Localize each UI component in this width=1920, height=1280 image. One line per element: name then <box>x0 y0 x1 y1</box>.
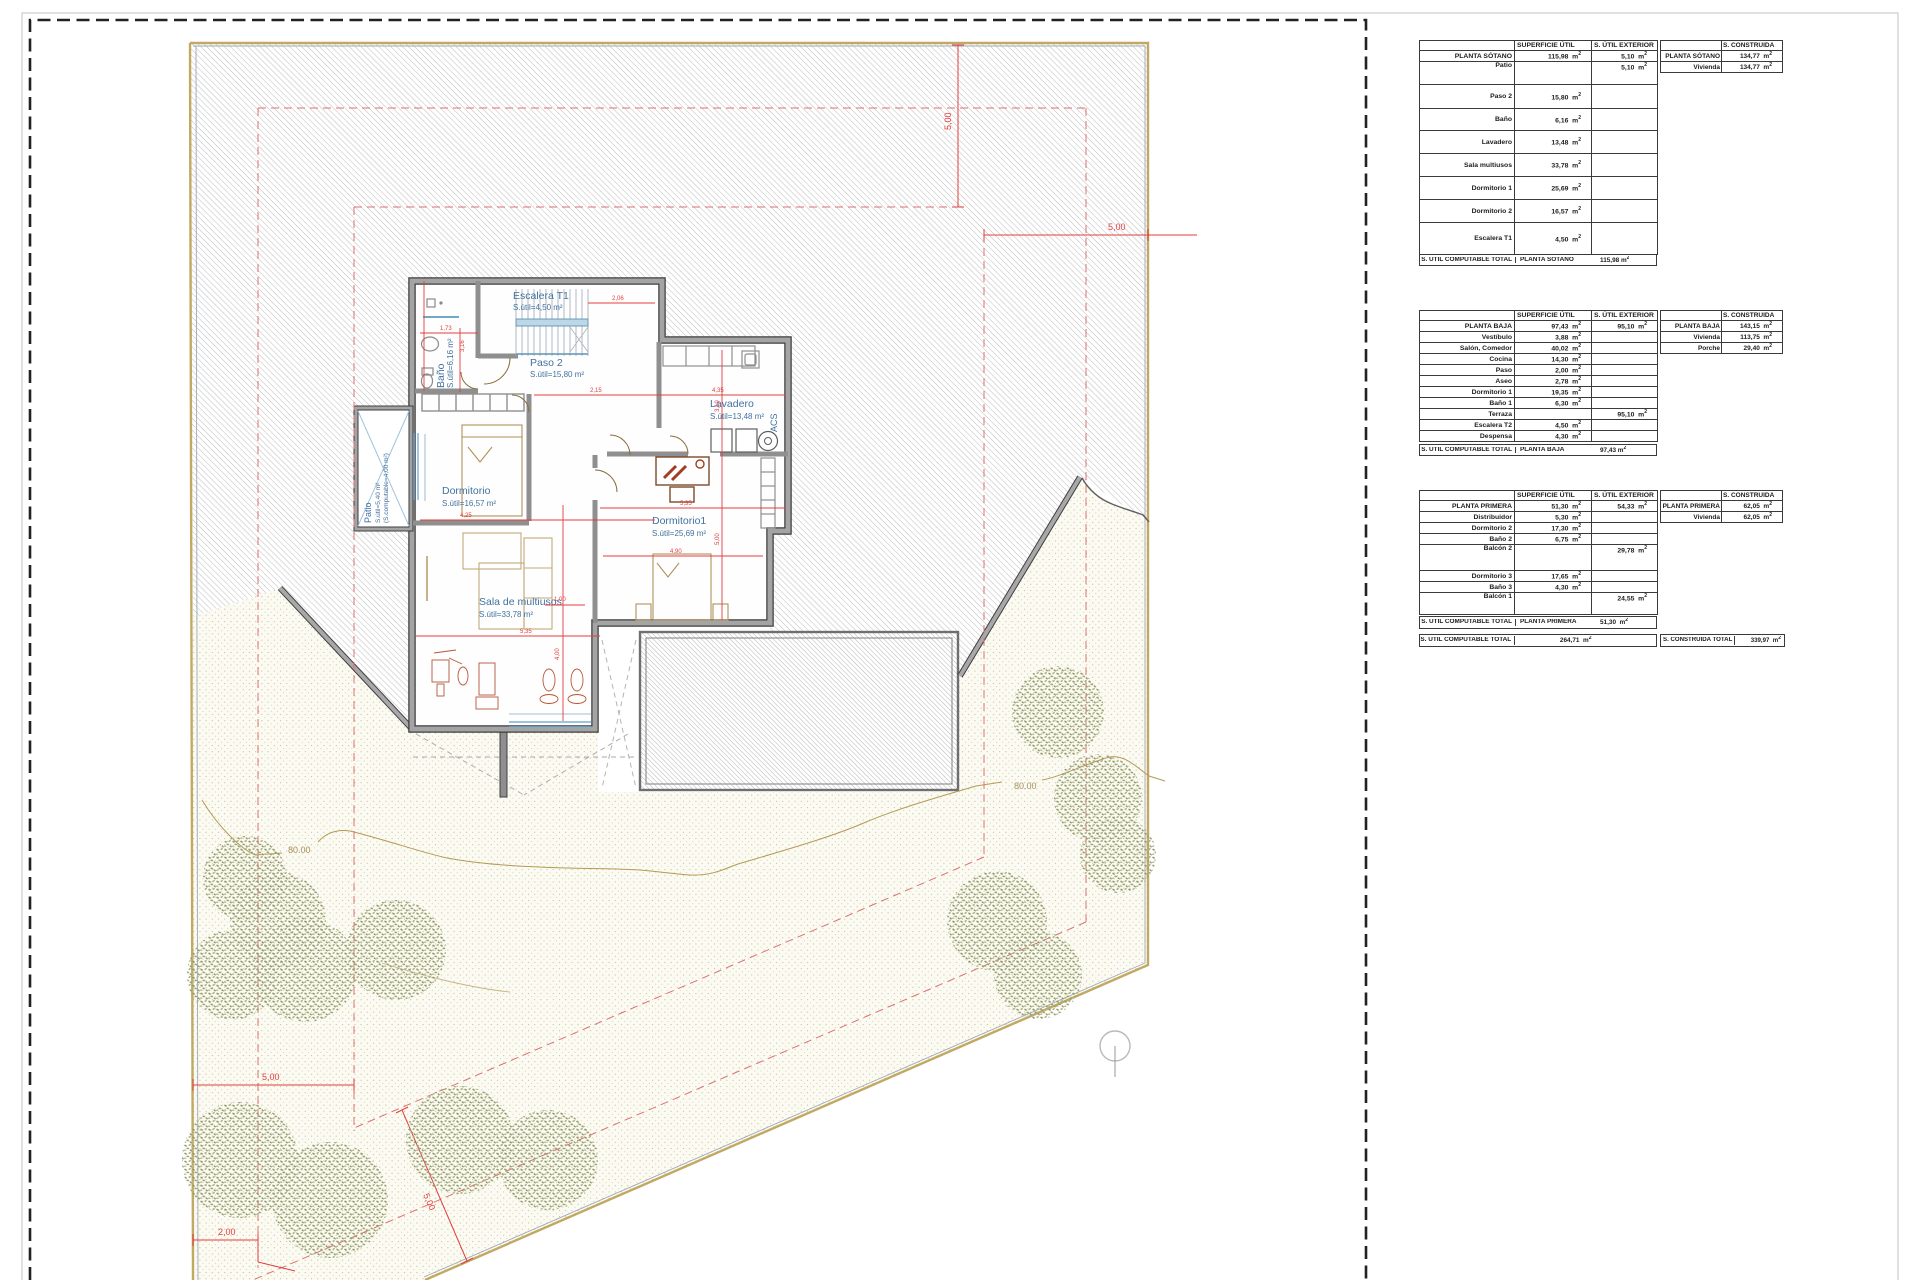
svg-text:Escalera T1: Escalera T1 <box>513 290 569 302</box>
svg-text:S.útil=33,78 m²: S.útil=33,78 m² <box>479 610 533 619</box>
svg-text:Sala de multiusos: Sala de multiusos <box>479 596 562 608</box>
svg-text:S.útil=4,50 m²: S.útil=4,50 m² <box>513 303 563 312</box>
svg-text:S.útil=5,40 m²: S.útil=5,40 m² <box>375 482 382 523</box>
svg-text:5,35: 5,35 <box>520 629 532 635</box>
svg-text:S.útil=16,57 m²: S.útil=16,57 m² <box>442 499 496 508</box>
svg-text:S.útil=6,16 m²: S.útil=6,16 m² <box>446 338 455 388</box>
svg-text:1,00: 1,00 <box>554 597 566 603</box>
svg-text:5,00: 5,00 <box>262 1072 280 1082</box>
svg-text:S.útil=25,69 m²: S.útil=25,69 m² <box>652 529 706 538</box>
svg-text:80.00: 80.00 <box>288 845 311 855</box>
svg-text:ACS: ACS <box>769 413 779 432</box>
svg-text:80.00: 80.00 <box>1014 781 1037 791</box>
svg-text:Dormitorio: Dormitorio <box>442 485 491 497</box>
svg-text:1,73: 1,73 <box>440 326 452 332</box>
svg-text:4,35: 4,35 <box>712 388 724 394</box>
svg-text:(S.computable=4,00 m²): (S.computable=4,00 m²) <box>383 453 390 523</box>
svg-text:Patio: Patio <box>363 502 373 523</box>
svg-text:3,16: 3,16 <box>460 340 466 352</box>
svg-text:5,35: 5,35 <box>680 501 692 507</box>
svg-text:2,15: 2,15 <box>590 388 602 394</box>
svg-text:5,00: 5,00 <box>943 112 953 130</box>
svg-text:2,00: 2,00 <box>218 1227 236 1237</box>
svg-text:Dormitorio1: Dormitorio1 <box>652 515 706 527</box>
svg-text:5,00: 5,00 <box>1108 222 1126 232</box>
svg-text:4,00: 4,00 <box>555 648 561 660</box>
svg-text:4,90: 4,90 <box>670 549 682 555</box>
svg-text:5,00: 5,00 <box>715 533 721 545</box>
svg-text:3,10: 3,10 <box>715 400 721 412</box>
svg-text:S.útil=15,80 m²: S.útil=15,80 m² <box>530 370 584 379</box>
svg-text:4,25: 4,25 <box>460 513 472 519</box>
svg-text:2,06: 2,06 <box>612 296 624 302</box>
svg-text:S.útil=13,48 m²: S.útil=13,48 m² <box>710 412 764 421</box>
svg-text:Paso 2: Paso 2 <box>530 357 563 369</box>
